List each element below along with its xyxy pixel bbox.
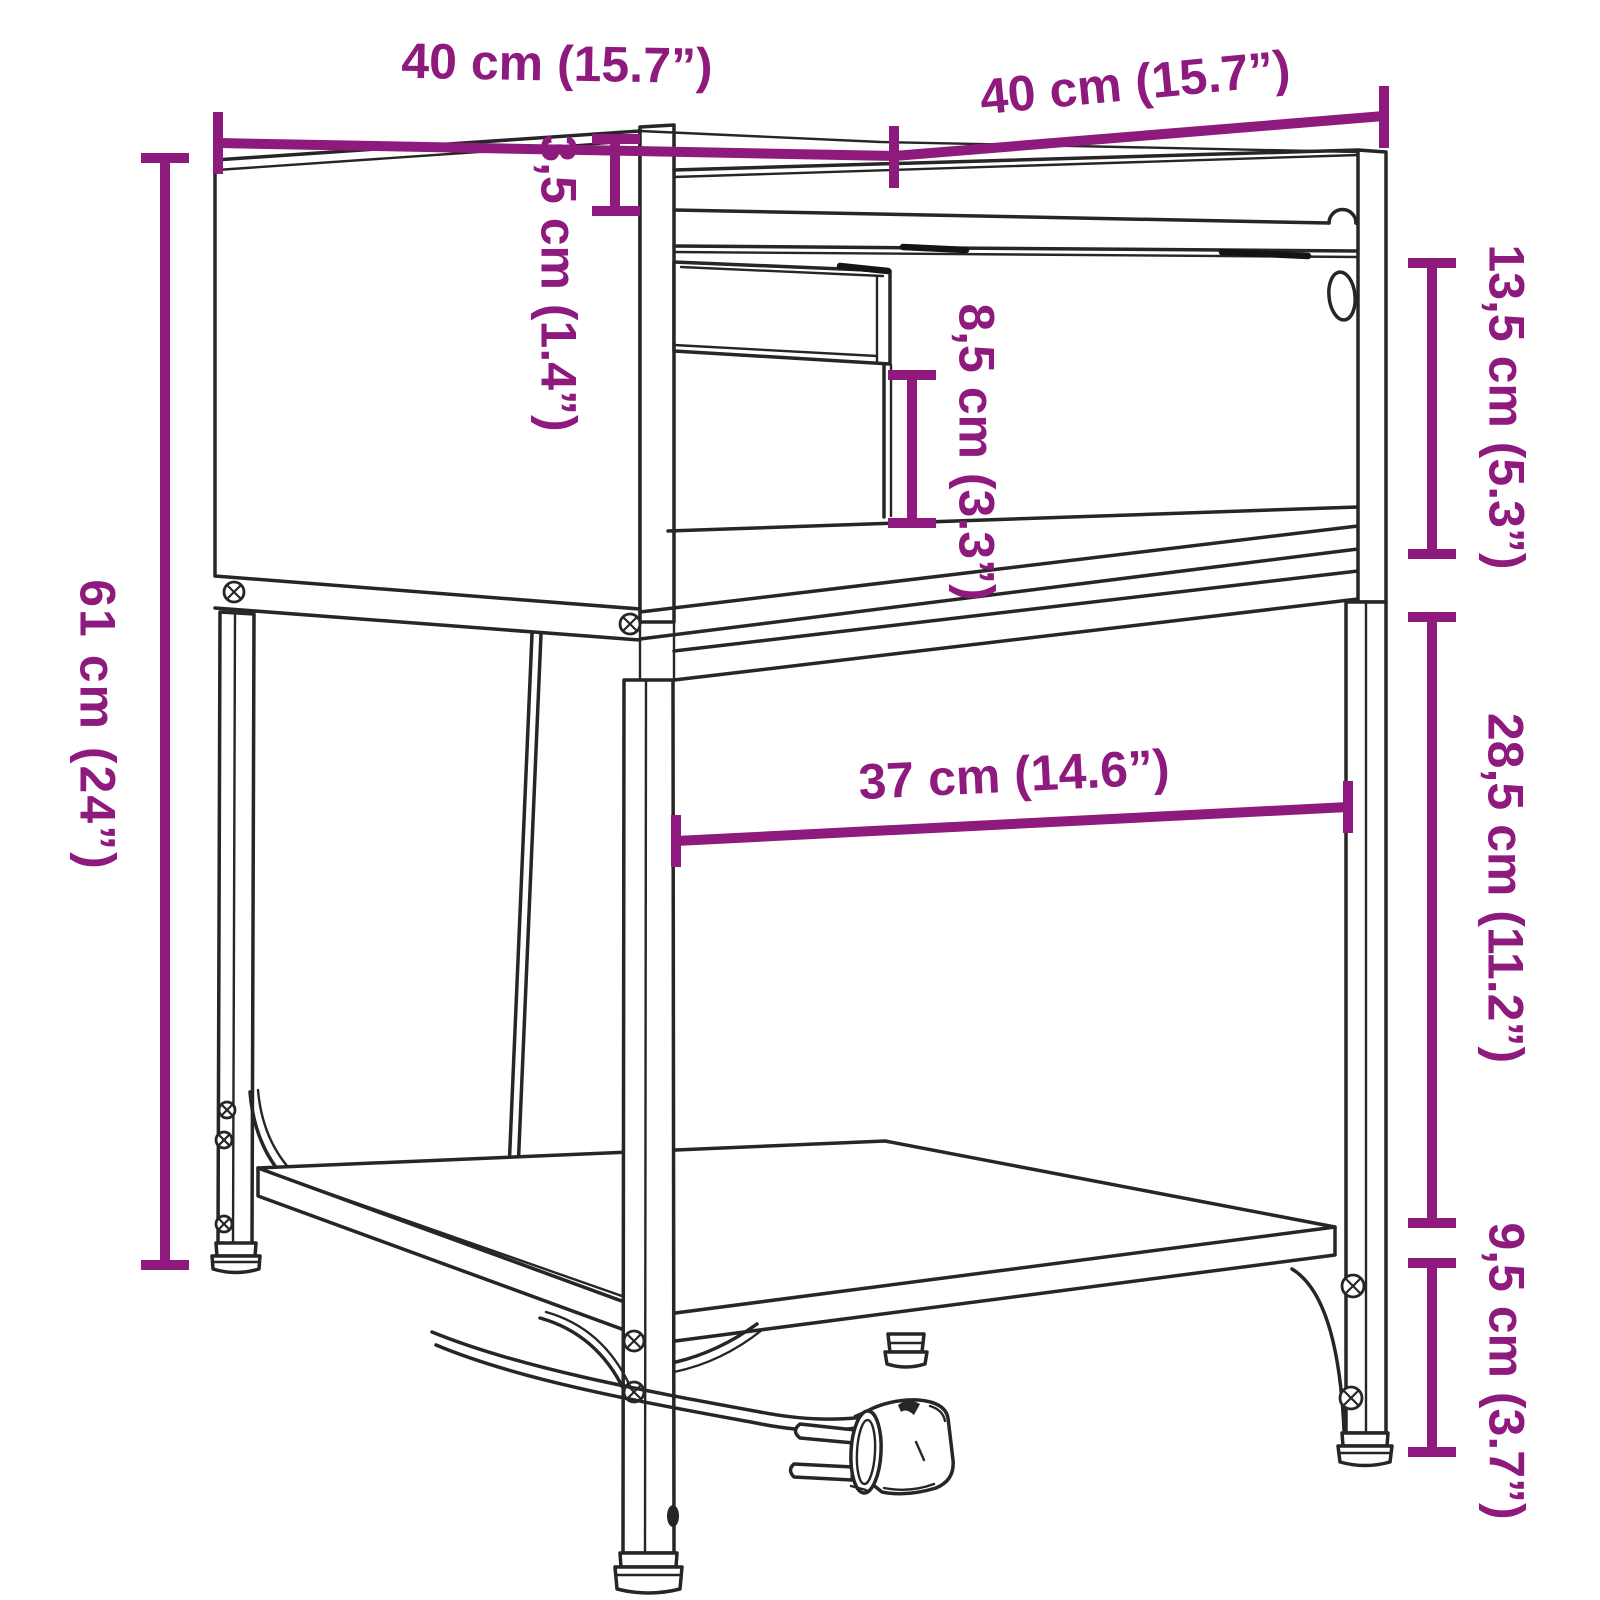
screw: [624, 1331, 644, 1351]
top-cabinet: [215, 125, 1386, 680]
shadow-dash-rail-left: [903, 247, 966, 250]
dimension-frame-height: 61 cm (24”): [70, 158, 190, 1265]
post-band-edges: [640, 622, 674, 680]
drawer: [674, 262, 890, 364]
dimension-top-width-label: 40 cm (15.7”): [401, 33, 713, 94]
niche-floor: [668, 507, 1358, 531]
dimension-top-thickness-label: 3,5 cm (1.4”): [531, 134, 587, 431]
nightstand-dimension-diagram: 40 cm (15.7”) 40 cm (15.7”) 3,5 cm (1.4”…: [0, 0, 1600, 1600]
cable-hole-oval: [1327, 271, 1358, 321]
dimension-foot-height: 9,5 cm (3.7”): [1408, 1222, 1535, 1519]
dimension-niche-height: 8,5 cm (3.3”): [888, 303, 1005, 600]
frame-screw-front: [620, 614, 640, 634]
adjustable-foot: [1338, 1433, 1392, 1466]
dimension-foot-height-label: 9,5 cm (3.7”): [1479, 1222, 1535, 1519]
screw: [216, 1216, 232, 1232]
front-right-post: [1358, 150, 1386, 602]
cable-arch-cutout: [1329, 210, 1356, 224]
right-corner-brace: [1292, 1269, 1344, 1430]
adjustable-foot: [212, 1243, 260, 1273]
front-left-post: [640, 125, 674, 622]
dimension-upper-height: 13,5 cm (5.3”): [1408, 244, 1535, 569]
rear-foot: [885, 1334, 927, 1367]
dimension-top-depth: 40 cm (15.7”): [894, 40, 1384, 156]
dimension-upper-height-label: 13,5 cm (5.3”): [1479, 244, 1535, 569]
plug-pin-top: [796, 1424, 856, 1443]
screw: [216, 1132, 232, 1148]
drawer-box: [674, 262, 890, 364]
left-frame-band-bottom: [215, 608, 640, 640]
power-plug: [791, 1400, 954, 1494]
second-rail-line: [674, 246, 1358, 251]
screw: [1340, 1387, 1362, 1409]
screw: [219, 1102, 235, 1118]
adjustable-foot: [615, 1553, 682, 1593]
shadow-dash-rail-right: [1222, 252, 1308, 256]
bottom-shelf: [258, 1141, 1335, 1343]
dimension-niche-height-label: 8,5 cm (3.3”): [949, 303, 1005, 600]
diagonal-support-rod: [509, 634, 541, 1188]
front-right-leg: [1292, 602, 1392, 1466]
dimension-frame-height-label: 61 cm (24”): [70, 579, 126, 871]
diagram-stage: 40 cm (15.7”) 40 cm (15.7”) 3,5 cm (1.4”…: [0, 0, 1600, 1600]
plug-pin-bottom: [791, 1464, 854, 1480]
front-left-leg: [540, 680, 762, 1593]
rear-left-leg: [212, 612, 260, 1273]
leg-shadow-dot: [667, 1505, 679, 1527]
screw: [1342, 1275, 1364, 1297]
nightstand-drawing: [212, 125, 1392, 1593]
dimension-leg-clearance: 28,5 cm (11.2”): [1408, 617, 1534, 1223]
dimension-top-depth-label: 40 cm (15.7”): [977, 40, 1292, 126]
dimension-inner-width-label: 37 cm (14.6”): [857, 739, 1171, 810]
dimension-inner-width: 37 cm (14.6”): [676, 739, 1348, 867]
frame-screw-left: [224, 582, 244, 602]
dimension-leg-clearance-label: 28,5 cm (11.2”): [1478, 713, 1534, 1063]
top-rail-line: [674, 210, 1358, 224]
